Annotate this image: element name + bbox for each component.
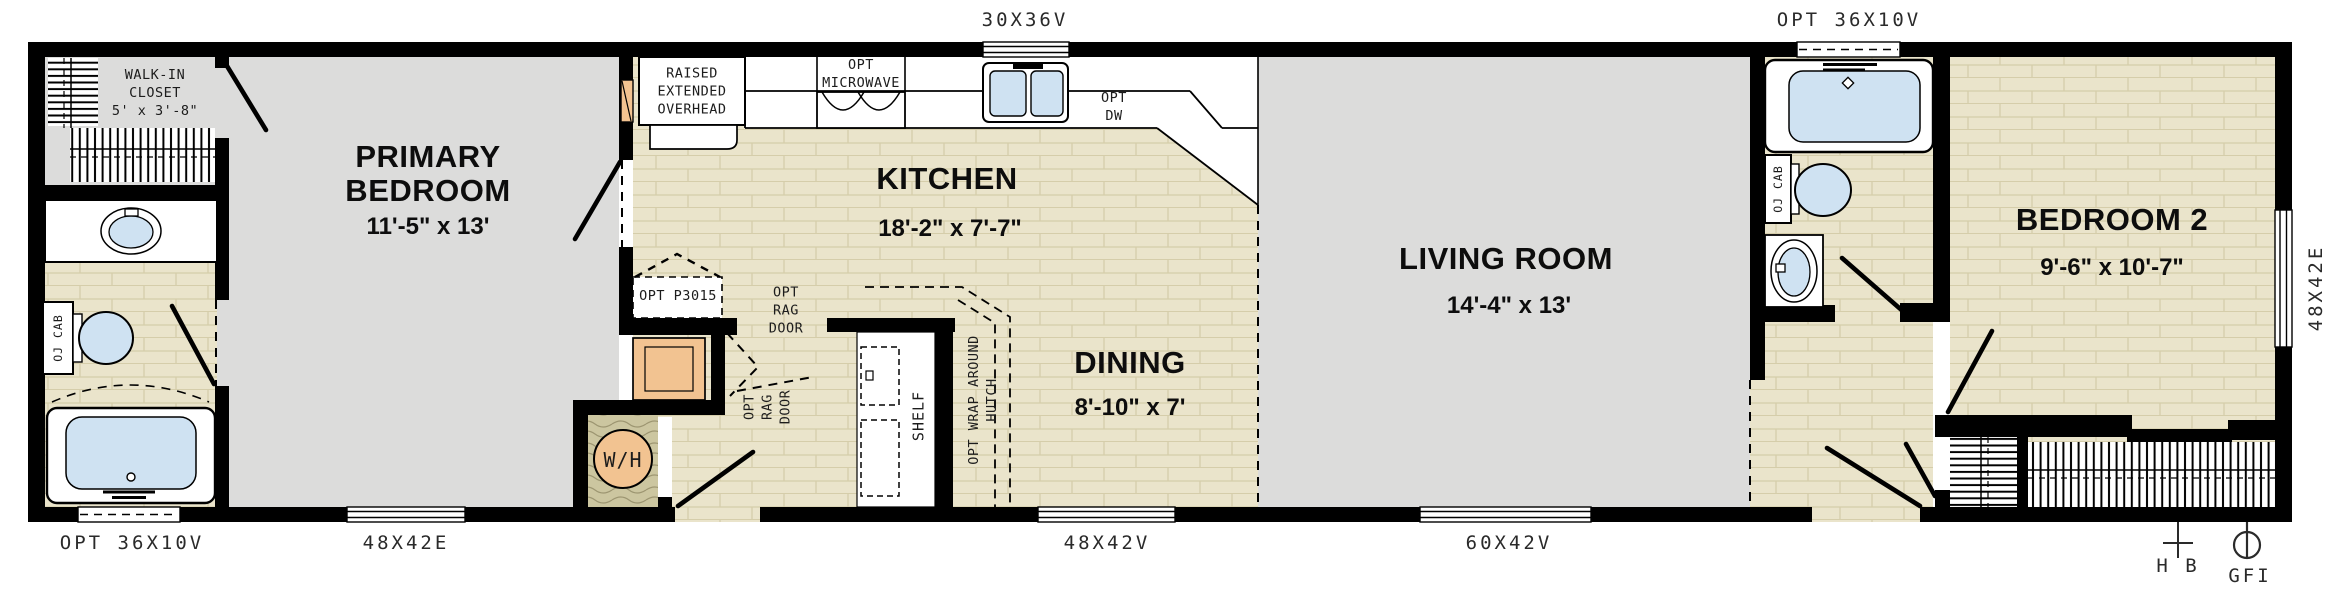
- floor-living-room: [1258, 57, 1750, 507]
- note-wrap-hutch: OPT WRAP AROUND HUTCH: [966, 335, 1002, 464]
- sink-2: [1765, 235, 1823, 307]
- hose-bib-icon: [2163, 522, 2193, 558]
- window-dining-bottom: [1038, 507, 1175, 522]
- window-label-bath1-bottom: OPT 36X10V: [60, 532, 204, 554]
- floorplan: PRIMARY BEDROOM 11'-5" x 13' KITCHEN 18'…: [0, 0, 2340, 599]
- pantry-cabinet: [621, 80, 633, 122]
- room-label-living-room: LIVING ROOM: [1399, 242, 1613, 276]
- closet-small: [1950, 437, 2017, 507]
- note-raised-overhead: RAISED EXTENDED OVERHEAD: [657, 65, 726, 118]
- window-bath1-bottom: [78, 507, 180, 522]
- window-label-primary-bottom: 48X42E: [363, 532, 450, 554]
- kitchen-sink: [983, 63, 1068, 122]
- note-opt-rag-door-2: OPT RAG DOOR: [741, 390, 794, 425]
- window-label-living-bottom: 60X42V: [1466, 532, 1553, 554]
- window-label-bedroom2-side: 48X42E: [2305, 245, 2327, 332]
- room-dims-kitchen: 18'-2" x 7'-7": [878, 215, 1022, 243]
- window-bedroom2-side: [2275, 210, 2292, 347]
- room-label-primary-bedroom: PRIMARY BEDROOM: [345, 140, 510, 208]
- closet-large: [2028, 442, 2275, 507]
- tub-1: [47, 408, 215, 503]
- room-dims-primary-bedroom: 11'-5" x 13': [367, 213, 490, 241]
- window-living-bottom: [1420, 507, 1591, 522]
- room-dims-bedroom2: 9'-6" x 10'-7": [2040, 254, 2184, 282]
- note-opt-rag-door-1: OPT RAG DOOR: [769, 284, 804, 337]
- note-opt-p3015: OPT P3015: [639, 288, 717, 306]
- toilet-2: [1795, 164, 1851, 216]
- note-hose-bib: H B: [2156, 555, 2199, 577]
- room-label-kitchen: KITCHEN: [876, 162, 1017, 196]
- room-label-bedroom2: BEDROOM 2: [2016, 203, 2208, 237]
- note-cab-bath1: OJ CAB: [51, 314, 65, 362]
- bedroom2-closets: [1950, 437, 2275, 507]
- window-primary-bottom: [347, 507, 465, 522]
- base-cabinet-orange: [633, 338, 705, 400]
- tub-2: [1765, 60, 1933, 152]
- room-label-dining: DINING: [1074, 346, 1186, 380]
- window-label-bath2-top: OPT 36X10V: [1777, 9, 1921, 31]
- room-dims-walkin-closet: 5' x 3'-8": [112, 103, 198, 121]
- room-dims-dining: 8'-10" x 7': [1075, 394, 1186, 422]
- window-bath2-top: [1797, 42, 1900, 57]
- note-opt-microwave: OPT MICROWAVE: [822, 57, 900, 93]
- front-entry-opening: [675, 507, 760, 522]
- note-opt-dw: OPT DW: [1101, 90, 1127, 126]
- window-label-kitchen-top: 30X36V: [982, 9, 1069, 31]
- utility-symbols: [2163, 522, 2260, 558]
- note-shelf: SHELF: [909, 391, 929, 441]
- note-gfi: GFI: [2228, 565, 2271, 587]
- wh-door-opening: [658, 417, 672, 497]
- room-label-walkin-closet: WALK-IN CLOSET: [125, 67, 185, 103]
- room-dims-living-room: 14'-4" x 13': [1447, 292, 1571, 320]
- window-label-dining-bottom: 48X42V: [1064, 532, 1151, 554]
- counter-return: [650, 125, 737, 149]
- toilet-1: [79, 312, 133, 364]
- gfi-icon: [2234, 522, 2260, 558]
- range: [817, 92, 905, 128]
- floorplan-drawing: [0, 0, 2340, 599]
- note-water-heater: W/H: [603, 448, 642, 472]
- window-kitchen-top: [983, 42, 1069, 57]
- faucet-1: [125, 209, 138, 216]
- back-entry-opening: [1812, 507, 1920, 522]
- note-cab-bath2: OJ CAB: [1771, 165, 1785, 213]
